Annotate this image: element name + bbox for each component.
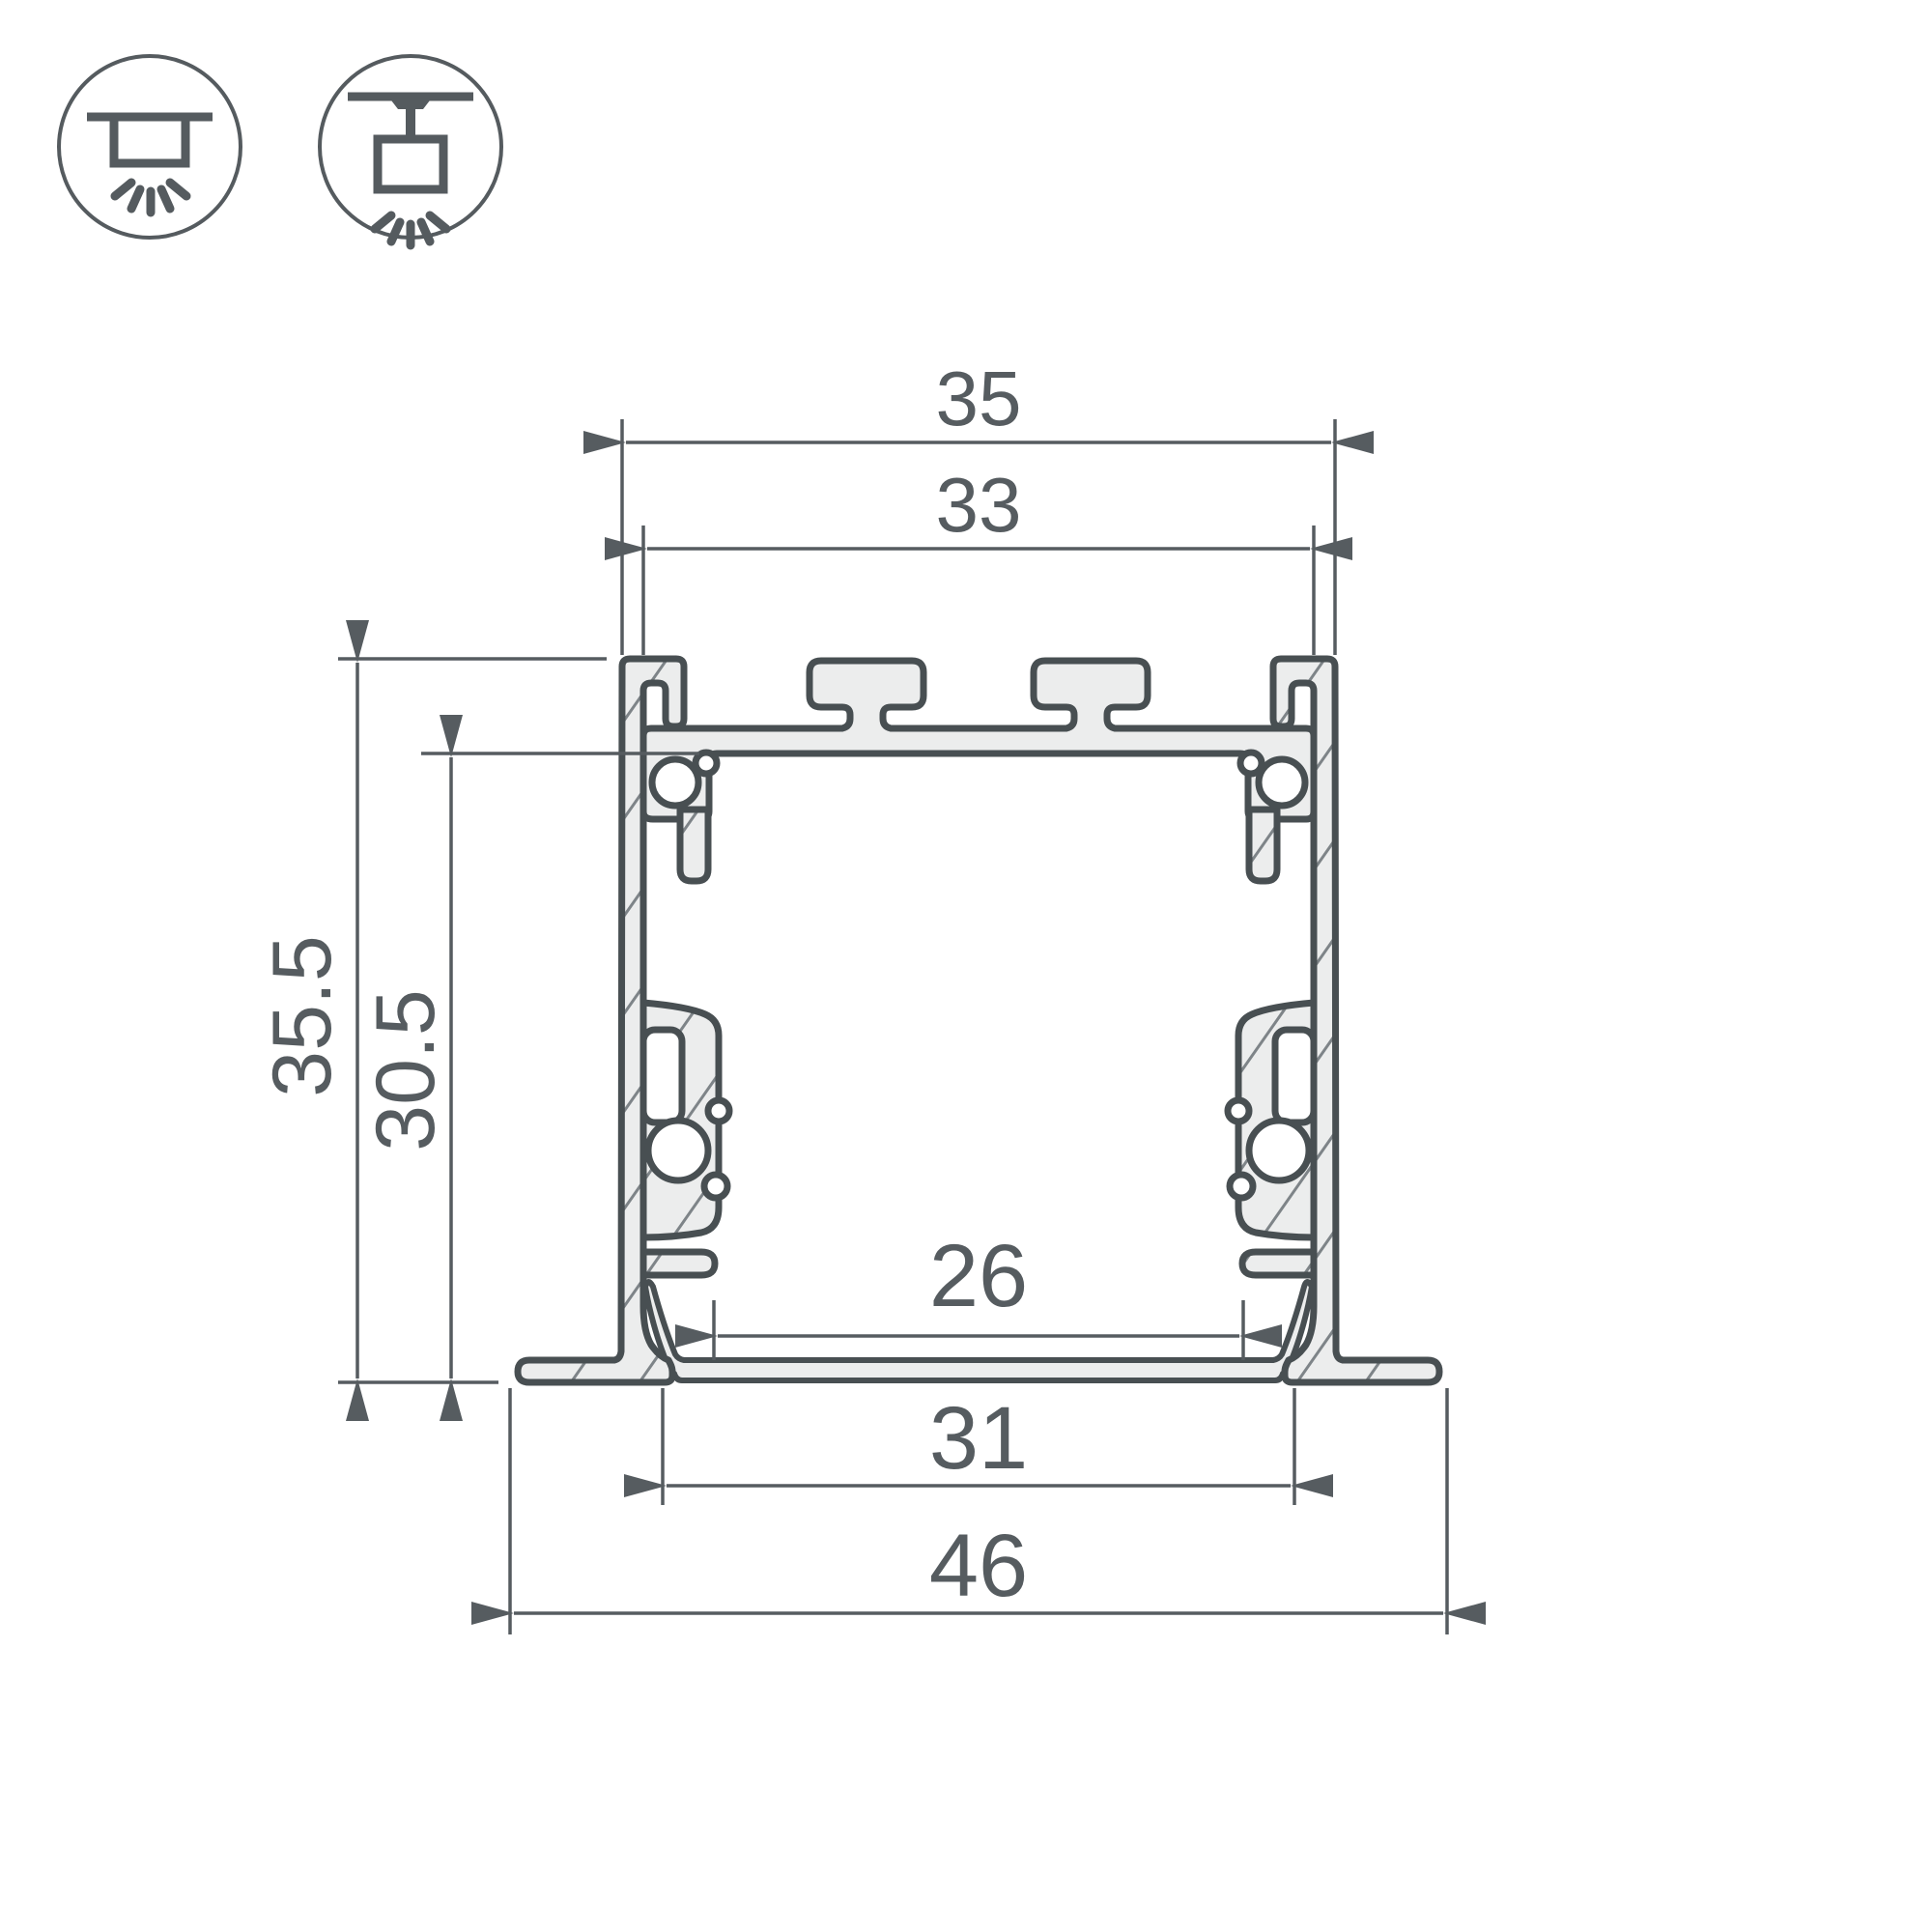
profile-left-wall xyxy=(518,659,729,1382)
profile-right-wall xyxy=(1228,659,1439,1382)
dim-flange-width-label: 46 xyxy=(929,1517,1028,1615)
dim-cutout-width-label: 31 xyxy=(929,1389,1028,1488)
light-rays xyxy=(115,183,186,213)
technical-drawing-page: 35 33 35.5 30.5 26 31 46 xyxy=(0,0,1932,1932)
dim-inner-height-label: 30.5 xyxy=(359,989,452,1151)
light-rays xyxy=(375,215,446,245)
profile-cross-section-drawing: 35 33 35.5 30.5 26 31 46 xyxy=(0,0,1932,1932)
mounting-icons xyxy=(59,56,501,245)
dim-outer-width-label: 35 xyxy=(936,355,1022,441)
recessed-mount-icon xyxy=(59,56,241,238)
surface-mount-icon xyxy=(320,56,501,245)
dim-outer-height-label: 35.5 xyxy=(256,935,349,1096)
profile-top-plate xyxy=(643,661,1314,819)
dim-bottom-inner-width-label: 26 xyxy=(929,1227,1028,1325)
dim-top-inner-width-label: 33 xyxy=(936,462,1022,548)
